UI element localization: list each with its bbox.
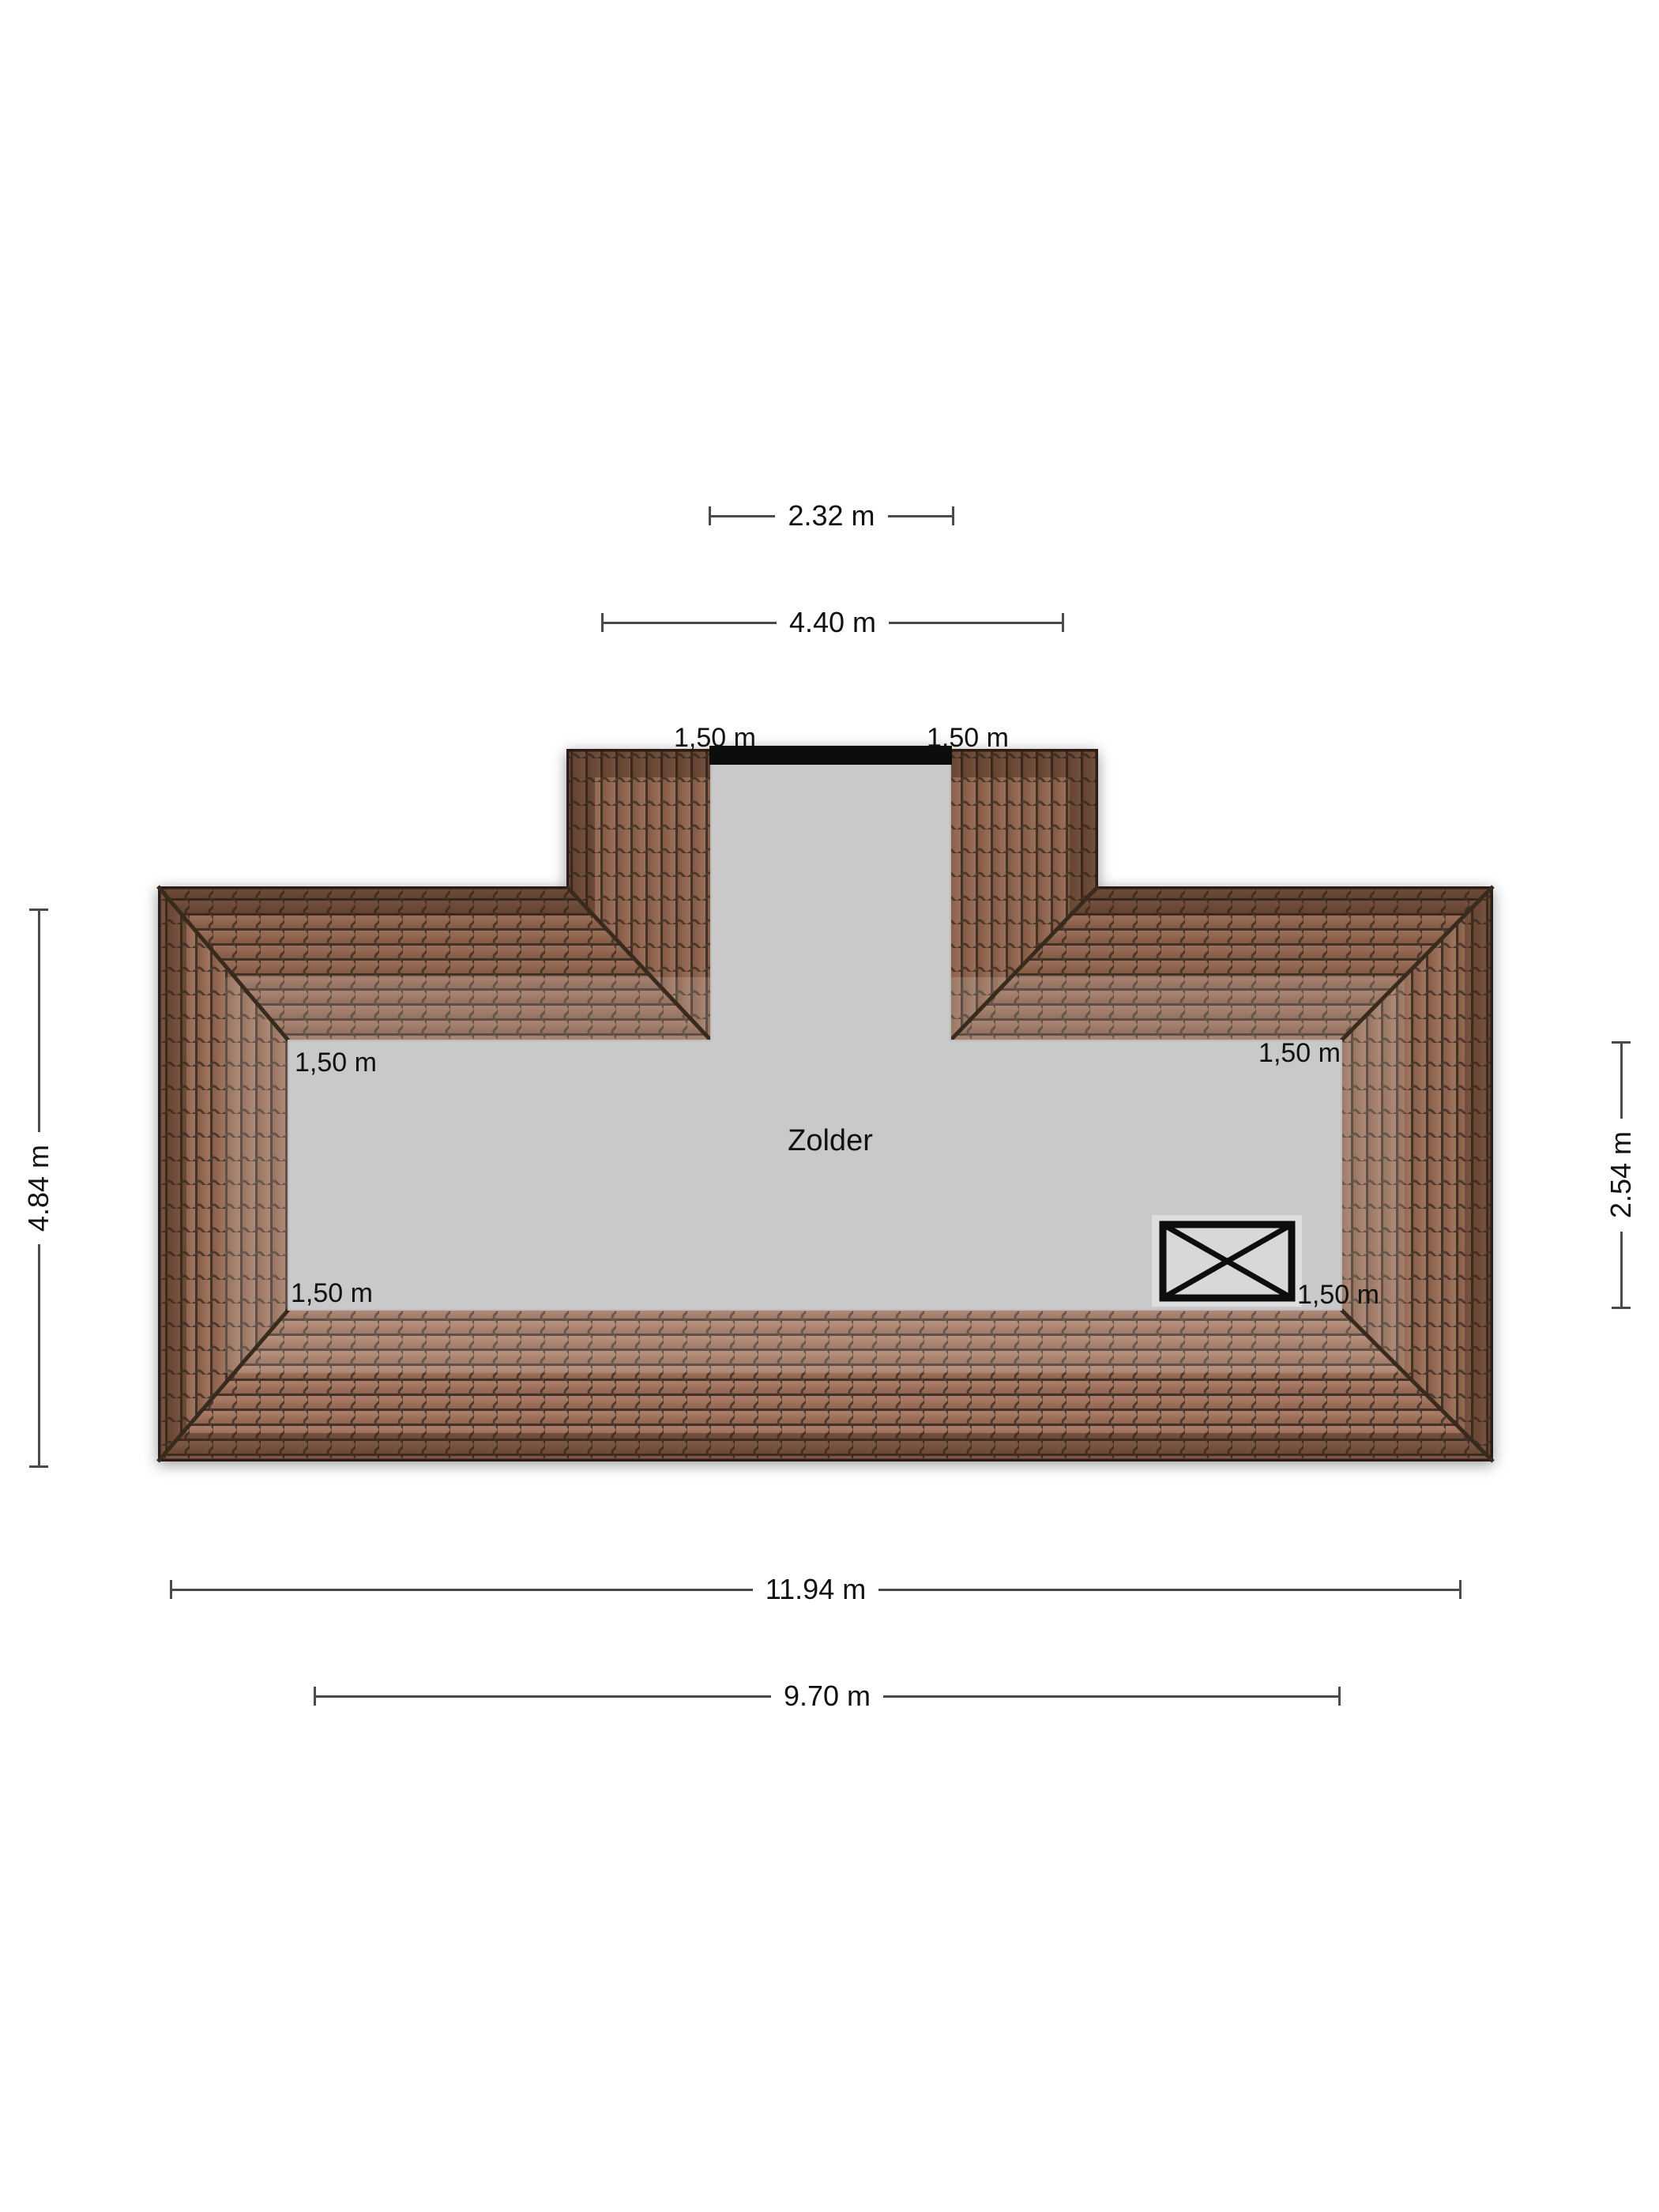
dormer-band-right-label: 1,50 m (927, 724, 1009, 751)
dimension-line (1620, 1044, 1623, 1119)
dimension-line (38, 911, 40, 1132)
room-label: Zolder (788, 1126, 873, 1156)
dimension-dormer-window-width: 2.32 m (709, 500, 954, 532)
dimension-line (604, 622, 777, 624)
roof-border-top-left-label: 1,50 m (295, 1049, 377, 1076)
roof-plan-drawing (0, 0, 1659, 2212)
dimension-tick (1062, 613, 1064, 632)
dimension-attic-floor-width: 9.70 m (314, 1680, 1341, 1712)
dimension-line (878, 1589, 1459, 1591)
dimension-line (883, 1695, 1338, 1698)
roof-border-bottom-left-label: 1,50 m (291, 1280, 373, 1307)
dimension-tick (1459, 1580, 1461, 1599)
dimension-attic-floor-depth: 2.54 m (1605, 1041, 1637, 1309)
dimension-dormer-total-width: 4.40 m (601, 607, 1064, 638)
floorplan-canvas: Zolder 2.32 m 4.40 m 11.94 m 9.70 m 4.84… (0, 0, 1659, 2212)
dormer-band-left-label: 1,50 m (674, 724, 756, 751)
dimension-line (38, 1244, 40, 1465)
dimension-line (711, 515, 775, 517)
dimension-line (1620, 1232, 1623, 1307)
dimension-tick (1338, 1687, 1341, 1706)
dimension-label: 11.94 m (753, 1575, 878, 1604)
dimension-line (888, 515, 952, 517)
roof-window-symbol (1152, 1215, 1302, 1307)
roof-plan-group (158, 746, 1493, 1461)
dimension-line (889, 622, 1062, 624)
dimension-line (172, 1589, 753, 1591)
dimension-label: 4.84 m (24, 1132, 53, 1244)
dimension-label: 2.54 m (1607, 1119, 1635, 1231)
dimension-label: 2.32 m (775, 502, 887, 530)
roof-border-bottom-right-label: 1,50 m (1297, 1281, 1379, 1308)
dimension-label: 9.70 m (771, 1682, 883, 1710)
dimension-tick (952, 506, 954, 525)
dimension-roof-total-width: 11.94 m (170, 1574, 1461, 1605)
dimension-line (316, 1695, 771, 1698)
dimension-roof-total-depth: 4.84 m (23, 908, 55, 1468)
dimension-tick (29, 1465, 48, 1468)
roof-border-top-right-label: 1,50 m (1258, 1040, 1341, 1066)
dimension-tick (1612, 1307, 1631, 1309)
dimension-label: 4.40 m (777, 608, 889, 637)
